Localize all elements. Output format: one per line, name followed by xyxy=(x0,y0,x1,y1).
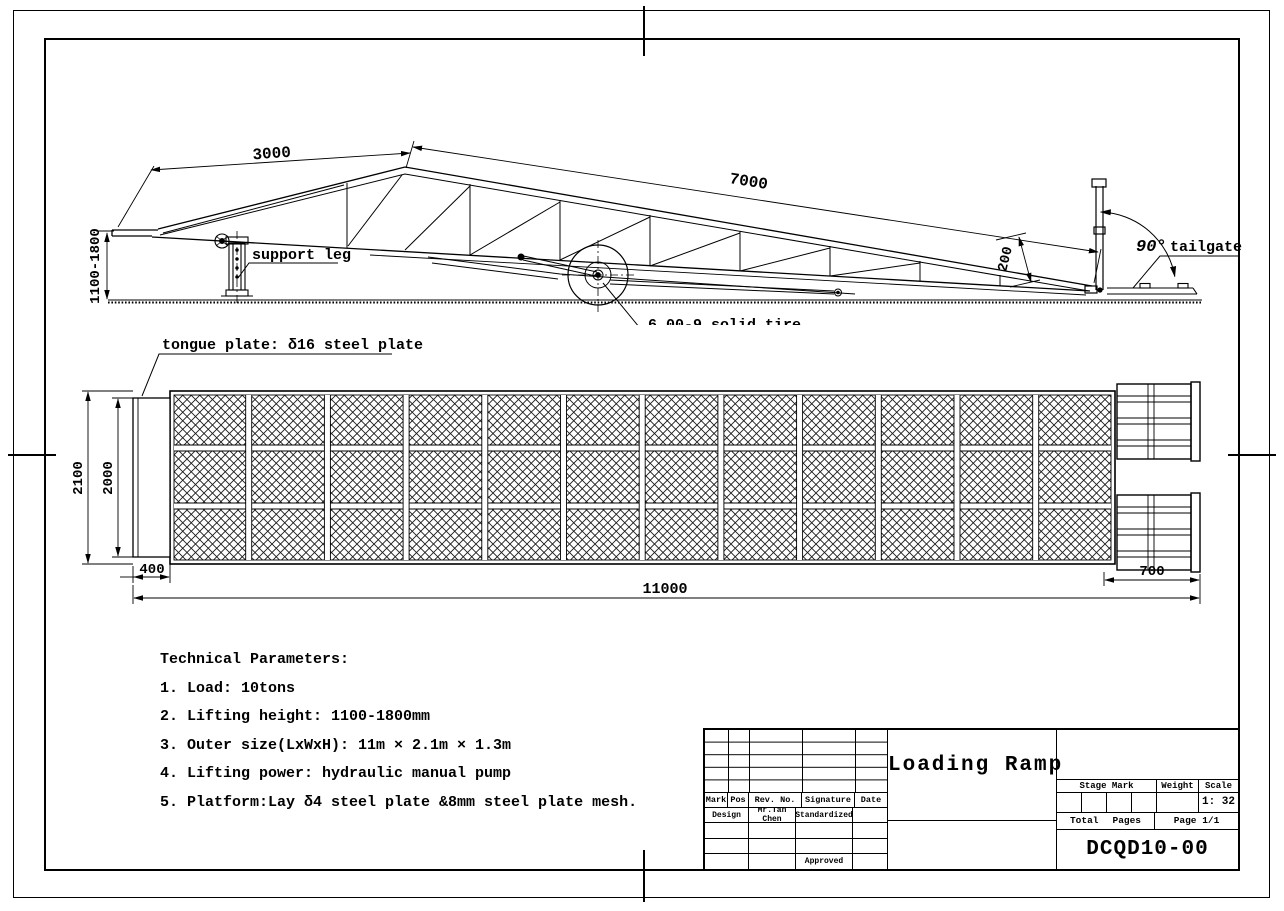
designer-name: Mr.Tan Chen xyxy=(749,808,796,823)
tech-param-item: 1. Load: 10tons xyxy=(160,675,700,704)
stage-mark-cell xyxy=(1057,793,1082,812)
ground-line xyxy=(108,300,1202,303)
tailgate-flap-top xyxy=(1117,382,1200,461)
title-block-right: Stage Mark Weight Scale 1: 32 TotalPages… xyxy=(1057,730,1238,869)
empty-cell xyxy=(705,823,749,838)
svg-text:400: 400 xyxy=(139,562,164,578)
dim-400: 400 xyxy=(120,559,170,583)
empty-cell xyxy=(705,854,749,869)
empty-cell xyxy=(749,823,796,838)
svg-text:90°: 90° xyxy=(1136,238,1167,257)
empty-cell xyxy=(853,808,887,823)
title-block-center: Loading Ramp xyxy=(888,730,1057,869)
drawing-sheet: { "side_view": { "dim_top_left": "3000",… xyxy=(0,0,1284,911)
svg-text:1100-1800: 1100-1800 xyxy=(90,228,104,304)
weight-value xyxy=(1157,793,1199,812)
tongue-plate xyxy=(133,398,170,557)
tech-param-item: 2. Lifting height: 1100-1800mm xyxy=(160,703,700,732)
svg-text:700: 700 xyxy=(1139,564,1164,580)
tongue-plate-label: tongue plate: δ16 steel plate xyxy=(142,337,423,396)
solid-tire xyxy=(562,240,636,312)
ramp-truss-chords xyxy=(112,167,1092,295)
svg-text:7000: 7000 xyxy=(728,170,769,194)
drawing-title: Loading Ramp xyxy=(888,754,1056,777)
top-view: 2100 2000 400 11000 700 tongue plate: δ1… xyxy=(70,328,1230,613)
empty-cell xyxy=(796,823,853,838)
weight-label: Weight xyxy=(1157,780,1199,792)
svg-text:6.00-9 solid tire: 6.00-9 solid tire xyxy=(648,317,801,325)
svg-text:11000: 11000 xyxy=(642,581,687,598)
dim-11000: 11000 xyxy=(133,574,1200,604)
tech-params-title: Technical Parameters: xyxy=(160,646,700,675)
stage-mark-cell xyxy=(1107,793,1132,812)
empty-cell xyxy=(705,839,749,854)
dim-lifting-height: 1100-1800 xyxy=(90,228,114,304)
stage-mark-label: Stage Mark xyxy=(1057,780,1157,792)
empty-cell xyxy=(796,839,853,854)
svg-text:3000: 3000 xyxy=(252,144,292,165)
truss-webs xyxy=(163,175,1000,286)
rev-header-mark: Mark xyxy=(705,793,728,807)
svg-text:support leg: support leg xyxy=(252,247,351,264)
dim-700: 700 xyxy=(1104,564,1199,586)
title-block-revision-table: Mark Pos Rev. No. Signature Date Design … xyxy=(705,730,888,869)
rev-header-revno: Rev. No. xyxy=(749,793,802,807)
empty-cell xyxy=(853,839,887,854)
page-value: Page 1/1 xyxy=(1155,813,1238,829)
undercarriage xyxy=(428,254,855,296)
tire-label: 6.00-9 solid tire xyxy=(603,283,801,325)
svg-text:2100: 2100 xyxy=(71,461,87,495)
pages-label: Pages xyxy=(1113,815,1142,826)
scale-label: Scale xyxy=(1199,780,1238,792)
tailgate-plate xyxy=(1107,284,1197,295)
rev-header-date: Date xyxy=(855,793,887,807)
tech-param-item: 4. Lifting power: hydraulic manual pump xyxy=(160,760,700,789)
total-label: Total xyxy=(1070,815,1099,826)
empty-cell xyxy=(853,854,887,869)
svg-text:2000: 2000 xyxy=(101,461,117,495)
stage-mark-cell xyxy=(1082,793,1107,812)
design-label: Design xyxy=(705,808,749,823)
stage-weight-scale-headers: Stage Mark Weight Scale xyxy=(1057,779,1238,793)
stage-mark-cell xyxy=(1132,793,1157,812)
tailgate-label: 90° tailgate xyxy=(1133,238,1242,288)
svg-text:200: 200 xyxy=(995,245,1017,273)
drawing-number: DCQD10-00 xyxy=(1057,830,1238,869)
total-pages-cell: TotalPages xyxy=(1057,813,1155,829)
technical-parameters: Technical Parameters: 1. Load: 10tons 2.… xyxy=(160,646,700,817)
tech-param-item: 3. Outer size(LxWxH): 11m × 2.1m × 1.3m xyxy=(160,732,700,761)
center-tick-right xyxy=(1228,454,1276,456)
standardized-label: Standardized xyxy=(796,808,853,823)
stage-weight-scale-values: 1: 32 xyxy=(1057,793,1238,813)
scale-value: 1: 32 xyxy=(1199,793,1238,812)
center-divider xyxy=(888,820,1056,821)
empty-cell xyxy=(749,854,796,869)
center-tick-top xyxy=(643,6,645,56)
title-block: Mark Pos Rev. No. Signature Date Design … xyxy=(703,728,1240,871)
empty-cell xyxy=(749,839,796,854)
tech-param-item: 5. Platform:Lay δ4 steel plate &8mm stee… xyxy=(160,789,700,818)
signature-grid: Design Mr.Tan Chen Standardized Approved xyxy=(705,808,887,869)
pages-row: TotalPages Page 1/1 xyxy=(1057,813,1238,830)
revision-grid xyxy=(705,730,887,793)
side-view: 3000 7000 1100-1800 200 support leg 6.00… xyxy=(90,130,1250,325)
dim-2000: 2000 xyxy=(101,398,133,557)
revision-headers: Mark Pos Rev. No. Signature Date xyxy=(705,793,887,808)
empty-cell xyxy=(853,823,887,838)
support-leg-label: support leg xyxy=(238,247,351,278)
svg-text:tailgate: tailgate xyxy=(1170,239,1242,256)
platform-deck xyxy=(170,391,1115,564)
rev-header-pos: Pos xyxy=(728,793,749,807)
svg-text:tongue plate: δ16 steel plate: tongue plate: δ16 steel plate xyxy=(162,337,423,354)
rev-header-signature: Signature xyxy=(802,793,855,807)
approved-label: Approved xyxy=(796,854,853,869)
dim-3000: 3000 xyxy=(118,141,414,227)
center-tick-bottom xyxy=(643,850,645,902)
tailgate-flap-bottom xyxy=(1117,493,1200,572)
center-tick-left xyxy=(8,454,56,456)
